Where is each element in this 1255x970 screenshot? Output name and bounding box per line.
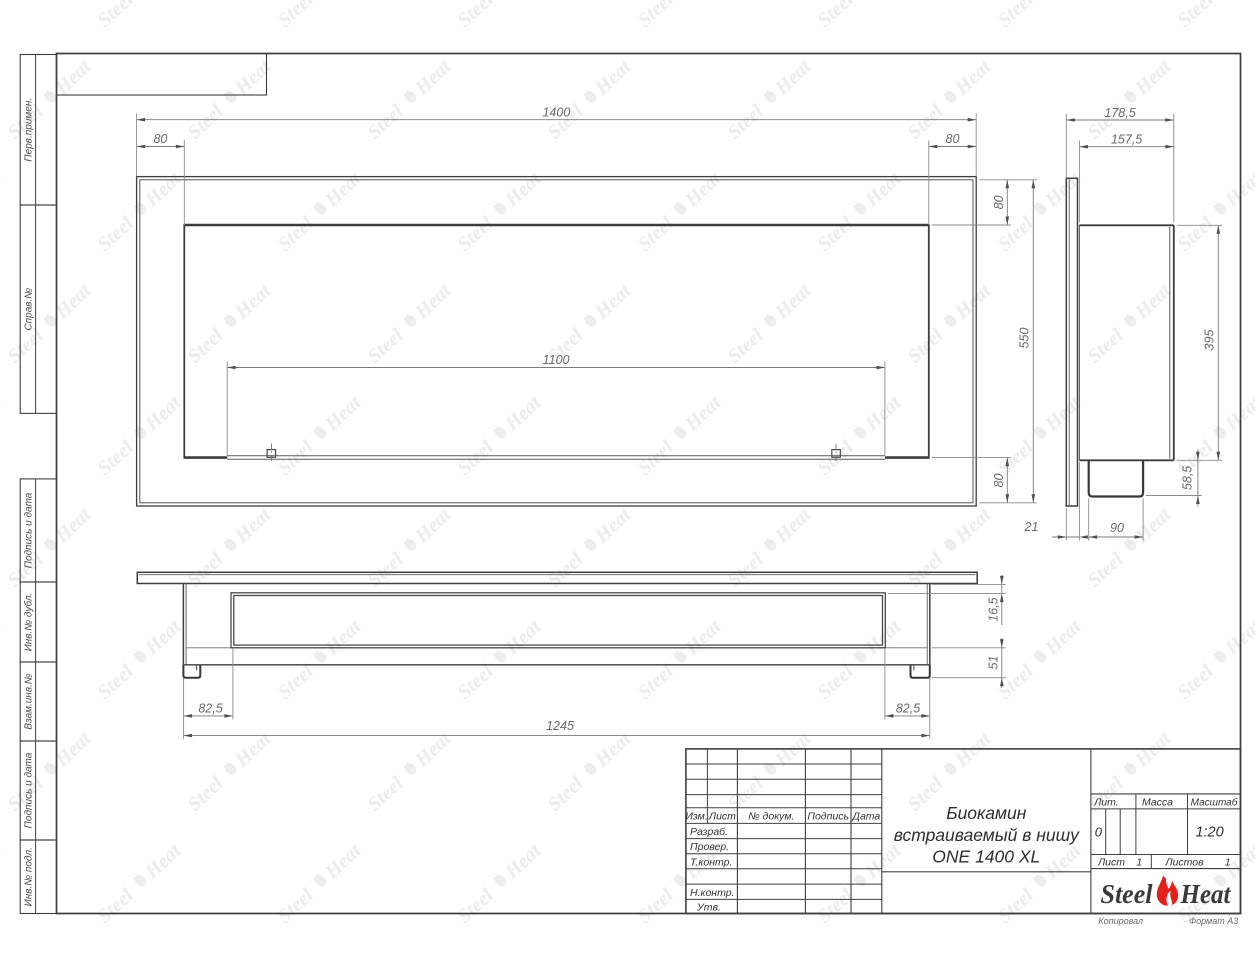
svg-text:Инв.№ подл.: Инв.№ подл. [24,847,35,906]
svg-text:Формат А3: Формат А3 [1189,916,1238,926]
svg-text:1:20: 1:20 [1195,825,1223,841]
svg-text:80: 80 [992,474,1006,488]
svg-text:Н.контр.: Н.контр. [690,887,734,899]
svg-text:Т.контр.: Т.контр. [690,856,732,868]
svg-text:Взам.инв.№: Взам.инв.№ [24,673,35,729]
svg-text:Перв.примен.: Перв.примен. [24,98,35,162]
svg-text:Steel: Steel [1101,879,1153,909]
svg-text:550: 550 [1018,328,1032,349]
svg-text:21: 21 [1024,520,1039,534]
svg-text:Масса: Масса [1142,796,1173,808]
svg-text:1100: 1100 [543,353,570,367]
svg-text:Провер.: Провер. [690,841,729,853]
svg-text:1400: 1400 [542,106,570,120]
svg-text:82,5: 82,5 [198,701,222,715]
svg-text:Лист: Лист [1097,856,1125,868]
svg-text:157,5: 157,5 [1111,132,1142,146]
svg-text:Справ.№: Справ.№ [24,288,35,331]
svg-text:Разраб.: Разраб. [690,826,728,838]
svg-text:58,5: 58,5 [1181,466,1195,490]
svg-text:80: 80 [946,132,960,146]
svg-text:Лист: Лист [708,811,736,823]
svg-text:51: 51 [987,656,1001,670]
svg-text:встраиваемый в нишу: встраиваемый в нишу [894,825,1080,845]
svg-text:Дата: Дата [852,811,881,823]
svg-text:90: 90 [1110,521,1124,535]
svg-text:Heat: Heat [1180,879,1232,909]
svg-text:Масштаб: Масштаб [1191,796,1238,808]
svg-text:№ докум.: № докум. [748,811,794,823]
svg-text:Листов: Листов [1164,856,1204,868]
svg-text:Лит.: Лит. [1093,796,1119,808]
svg-text:80: 80 [992,195,1006,209]
svg-text:Биокамин: Биокамин [946,803,1027,823]
svg-text:Инв.№ дубл.: Инв.№ дубл. [23,593,35,652]
svg-text:80: 80 [153,132,167,146]
svg-text:1: 1 [1225,856,1231,868]
svg-text:Подпись: Подпись [807,811,849,823]
svg-text:ONE 1400 XL: ONE 1400 XL [932,847,1040,867]
svg-text:Утв.: Утв. [696,902,721,914]
svg-text:1245: 1245 [546,719,574,733]
svg-text:16,5: 16,5 [987,597,1001,621]
svg-text:Подпись и дата: Подпись и дата [24,752,35,828]
svg-text:Копировал: Копировал [1098,916,1143,926]
svg-text:395: 395 [1202,330,1216,351]
svg-text:Подпись и дата: Подпись и дата [24,492,35,568]
svg-text:82,5: 82,5 [896,701,920,715]
svg-text:178,5: 178,5 [1104,106,1135,120]
svg-text:Изм.: Изм. [685,811,707,823]
svg-text:1: 1 [1136,856,1142,868]
svg-text:0: 0 [1095,825,1103,840]
